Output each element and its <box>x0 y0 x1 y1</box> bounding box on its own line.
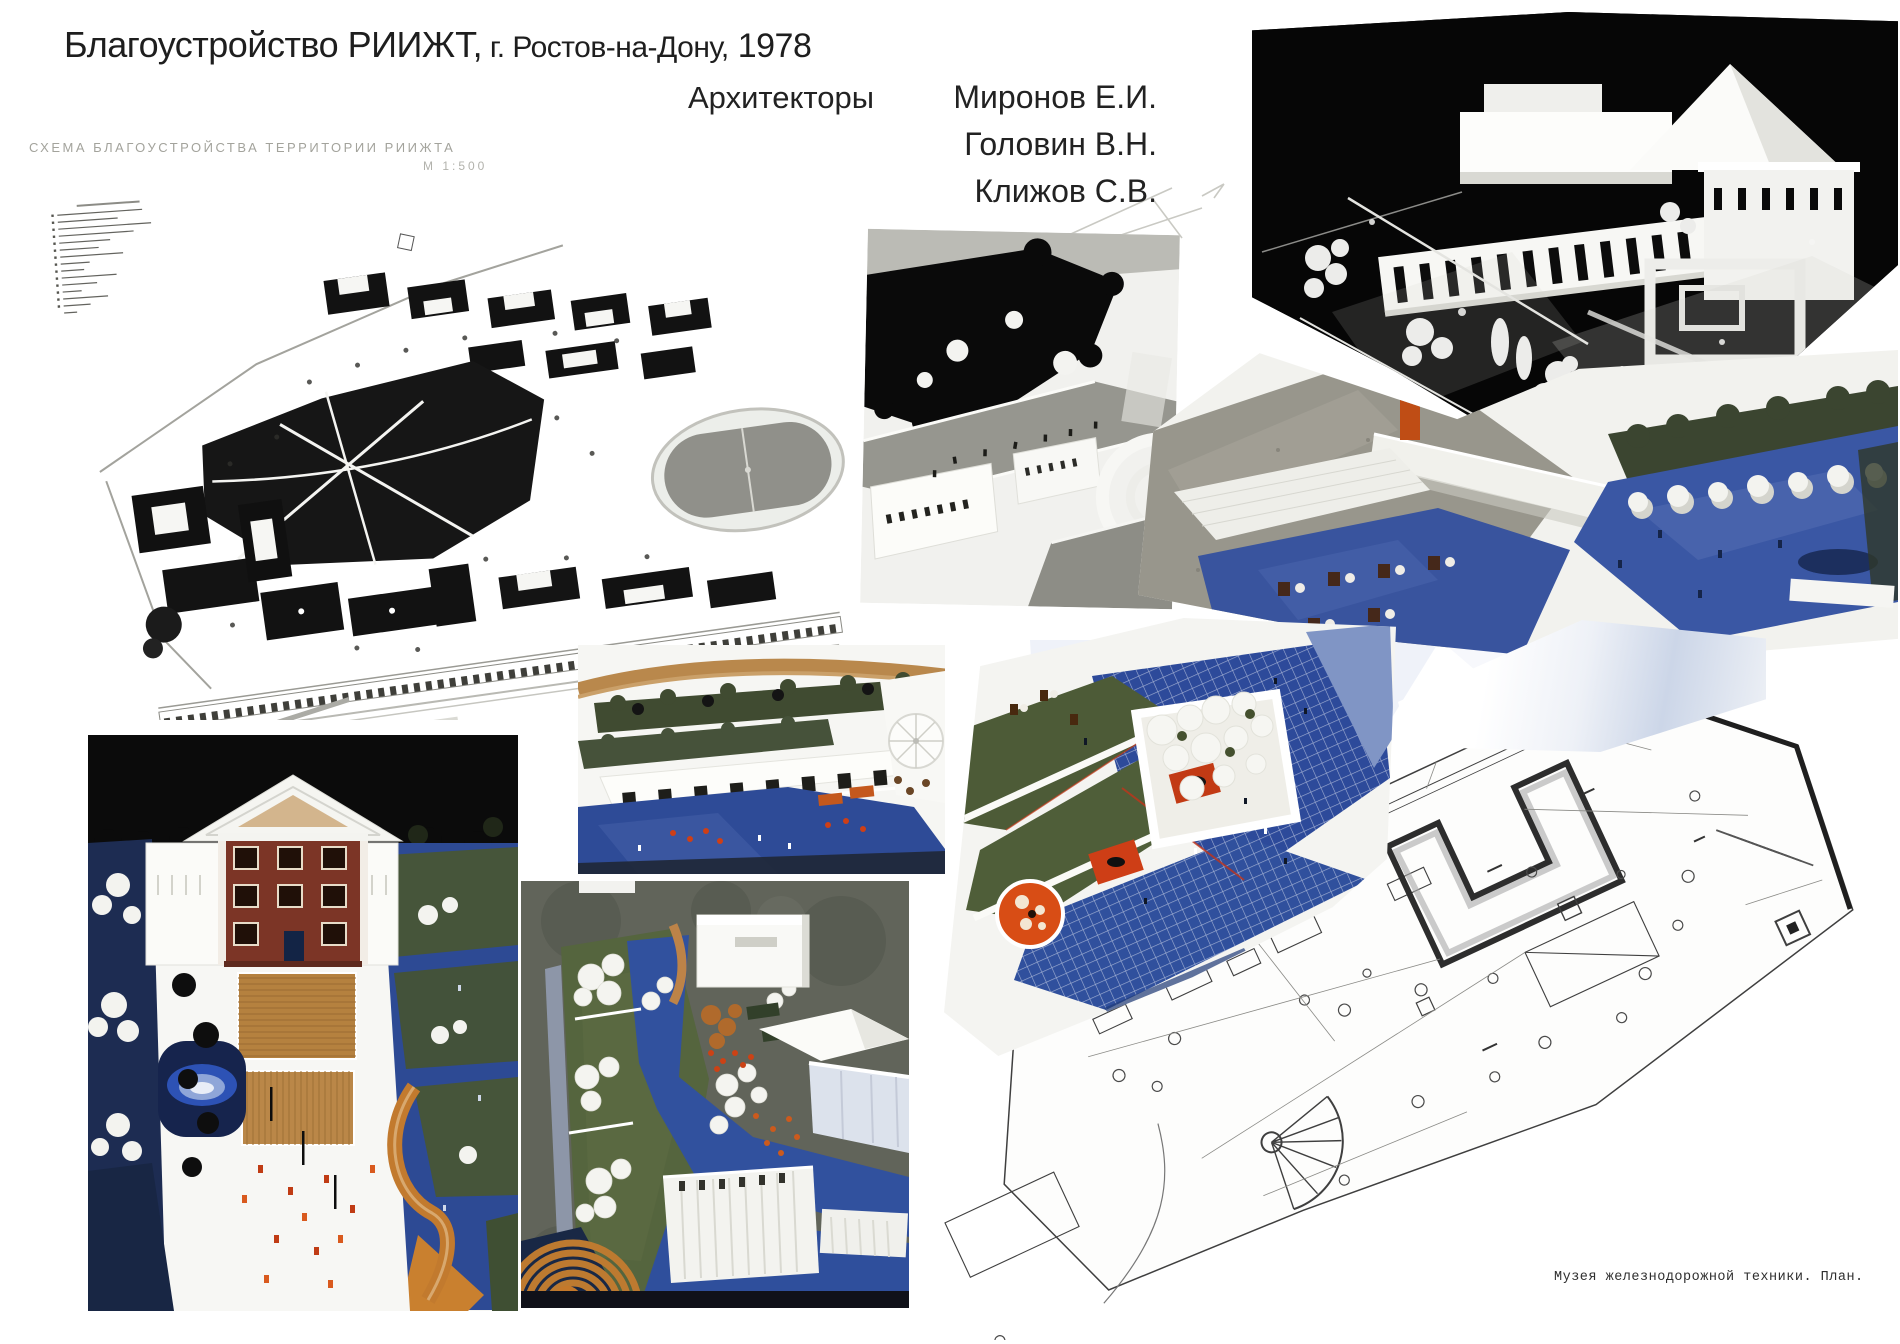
architect-2: Головин В.Н. <box>925 121 1157 168</box>
site-plan-scale: М 1:500 <box>423 159 487 173</box>
presentation-board: Благоустройство РИИЖТ, г. Ростов-на-Дону… <box>0 0 1900 1344</box>
architects-label: Архитекторы <box>688 80 874 116</box>
site-plan-photo: СХЕМА БЛАГОУСТРОЙСТВА ТЕРРИТОРИИ РИИЖТА … <box>25 112 885 720</box>
title-city: г. Ростов-на-Дону, <box>482 31 729 64</box>
architect-1: Миронов Е.И. <box>925 74 1157 121</box>
museum-plan-caption: Музея железнодорожной техники. План. <box>1554 1270 1864 1285</box>
architects-names: Миронов Е.И. Головин В.Н. Клижов С.В. <box>925 74 1157 215</box>
page-title: Благоустройство РИИЖТ, г. Ростов-на-Дону… <box>64 24 811 66</box>
round-canopy <box>889 714 943 768</box>
round-kiosk <box>997 881 1063 947</box>
model-photo-classical-building <box>88 735 518 1311</box>
white-box-building <box>697 915 809 987</box>
plan-stadium <box>644 397 851 543</box>
title-main: Благоустройство РИИЖТ, <box>64 24 482 65</box>
architect-3: Клижов С.В. <box>925 168 1157 215</box>
model-photo-campus-lawn <box>521 881 909 1308</box>
colonnade-slab <box>663 1167 819 1283</box>
tree-planter <box>1136 692 1296 844</box>
model-photo-bw-courtyard <box>860 229 1180 609</box>
plan-legend <box>51 201 157 314</box>
site-plan-heading: СХЕМА БЛАГОУСТРОЙСТВА ТЕРРИТОРИИ РИИЖТА <box>29 140 455 155</box>
model-photo-embankment <box>1138 350 1898 664</box>
wooden-deck <box>238 973 356 1145</box>
title-year: 1978 <box>729 27 812 65</box>
model-photo-kiosks-plaza <box>578 645 945 874</box>
